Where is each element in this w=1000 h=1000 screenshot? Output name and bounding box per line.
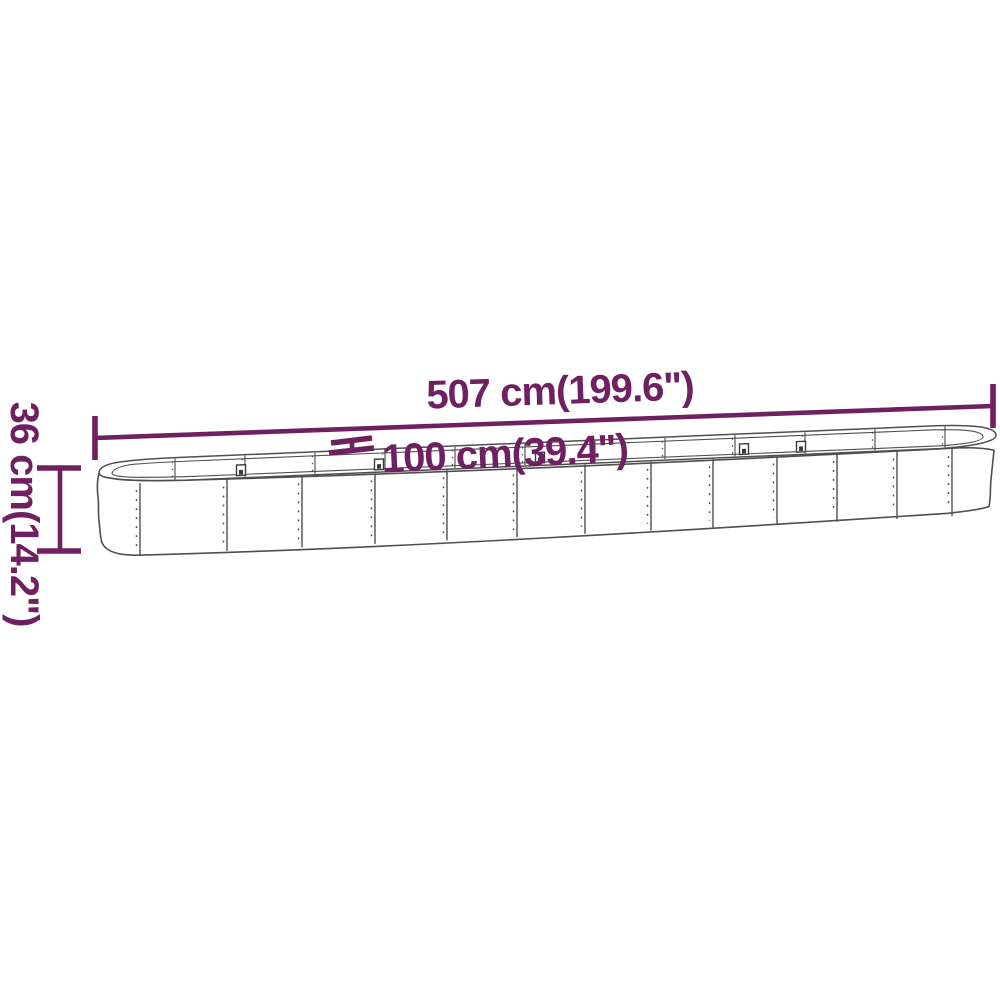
rim-clip-dot	[742, 449, 746, 454]
length-label: 507 cm(199.6")	[426, 364, 695, 417]
diagram-svg: 507 cm(199.6") 36 cm(14.2") 100 cm(39.4"…	[0, 0, 1000, 1000]
product-dimension-diagram: 507 cm(199.6") 36 cm(14.2") 100 cm(39.4"…	[0, 0, 1000, 1000]
rim-clip-dot	[239, 470, 243, 475]
width-dimension-tick-bottom	[329, 448, 374, 453]
width-dimension-tick-top	[331, 438, 372, 443]
rim-clip-dot	[377, 464, 381, 469]
height-label: 36 cm(14.2")	[2, 402, 46, 627]
rim-clip-dot	[799, 446, 803, 451]
height-dimension: 36 cm(14.2")	[2, 402, 81, 627]
